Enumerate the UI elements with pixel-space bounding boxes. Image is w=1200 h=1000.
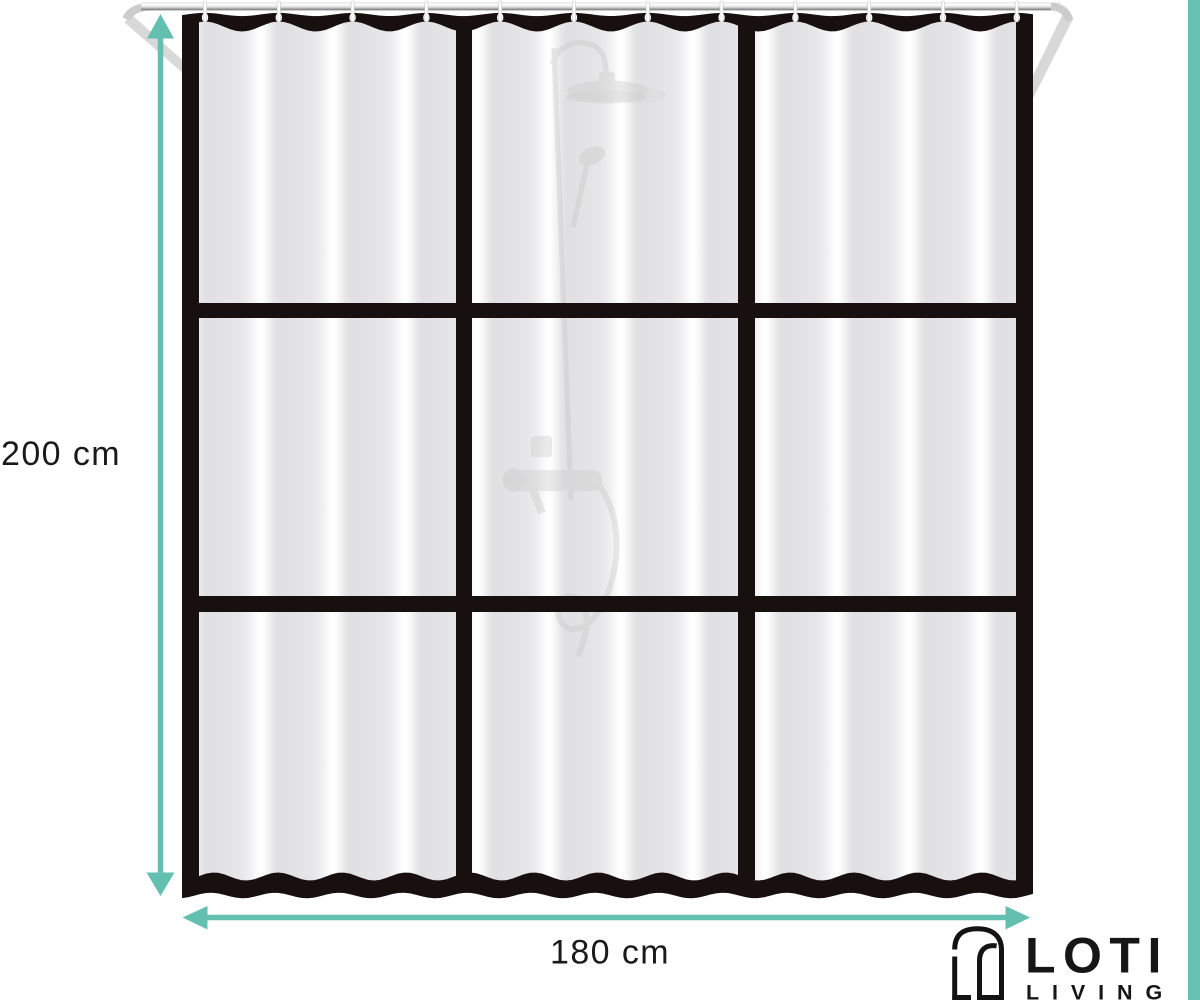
svg-text:LIVING: LIVING <box>1026 981 1175 1000</box>
svg-text:180 cm: 180 cm <box>550 934 670 972</box>
svg-text:LOTI: LOTI <box>1025 928 1169 984</box>
svg-text:200 cm: 200 cm <box>1 435 121 473</box>
